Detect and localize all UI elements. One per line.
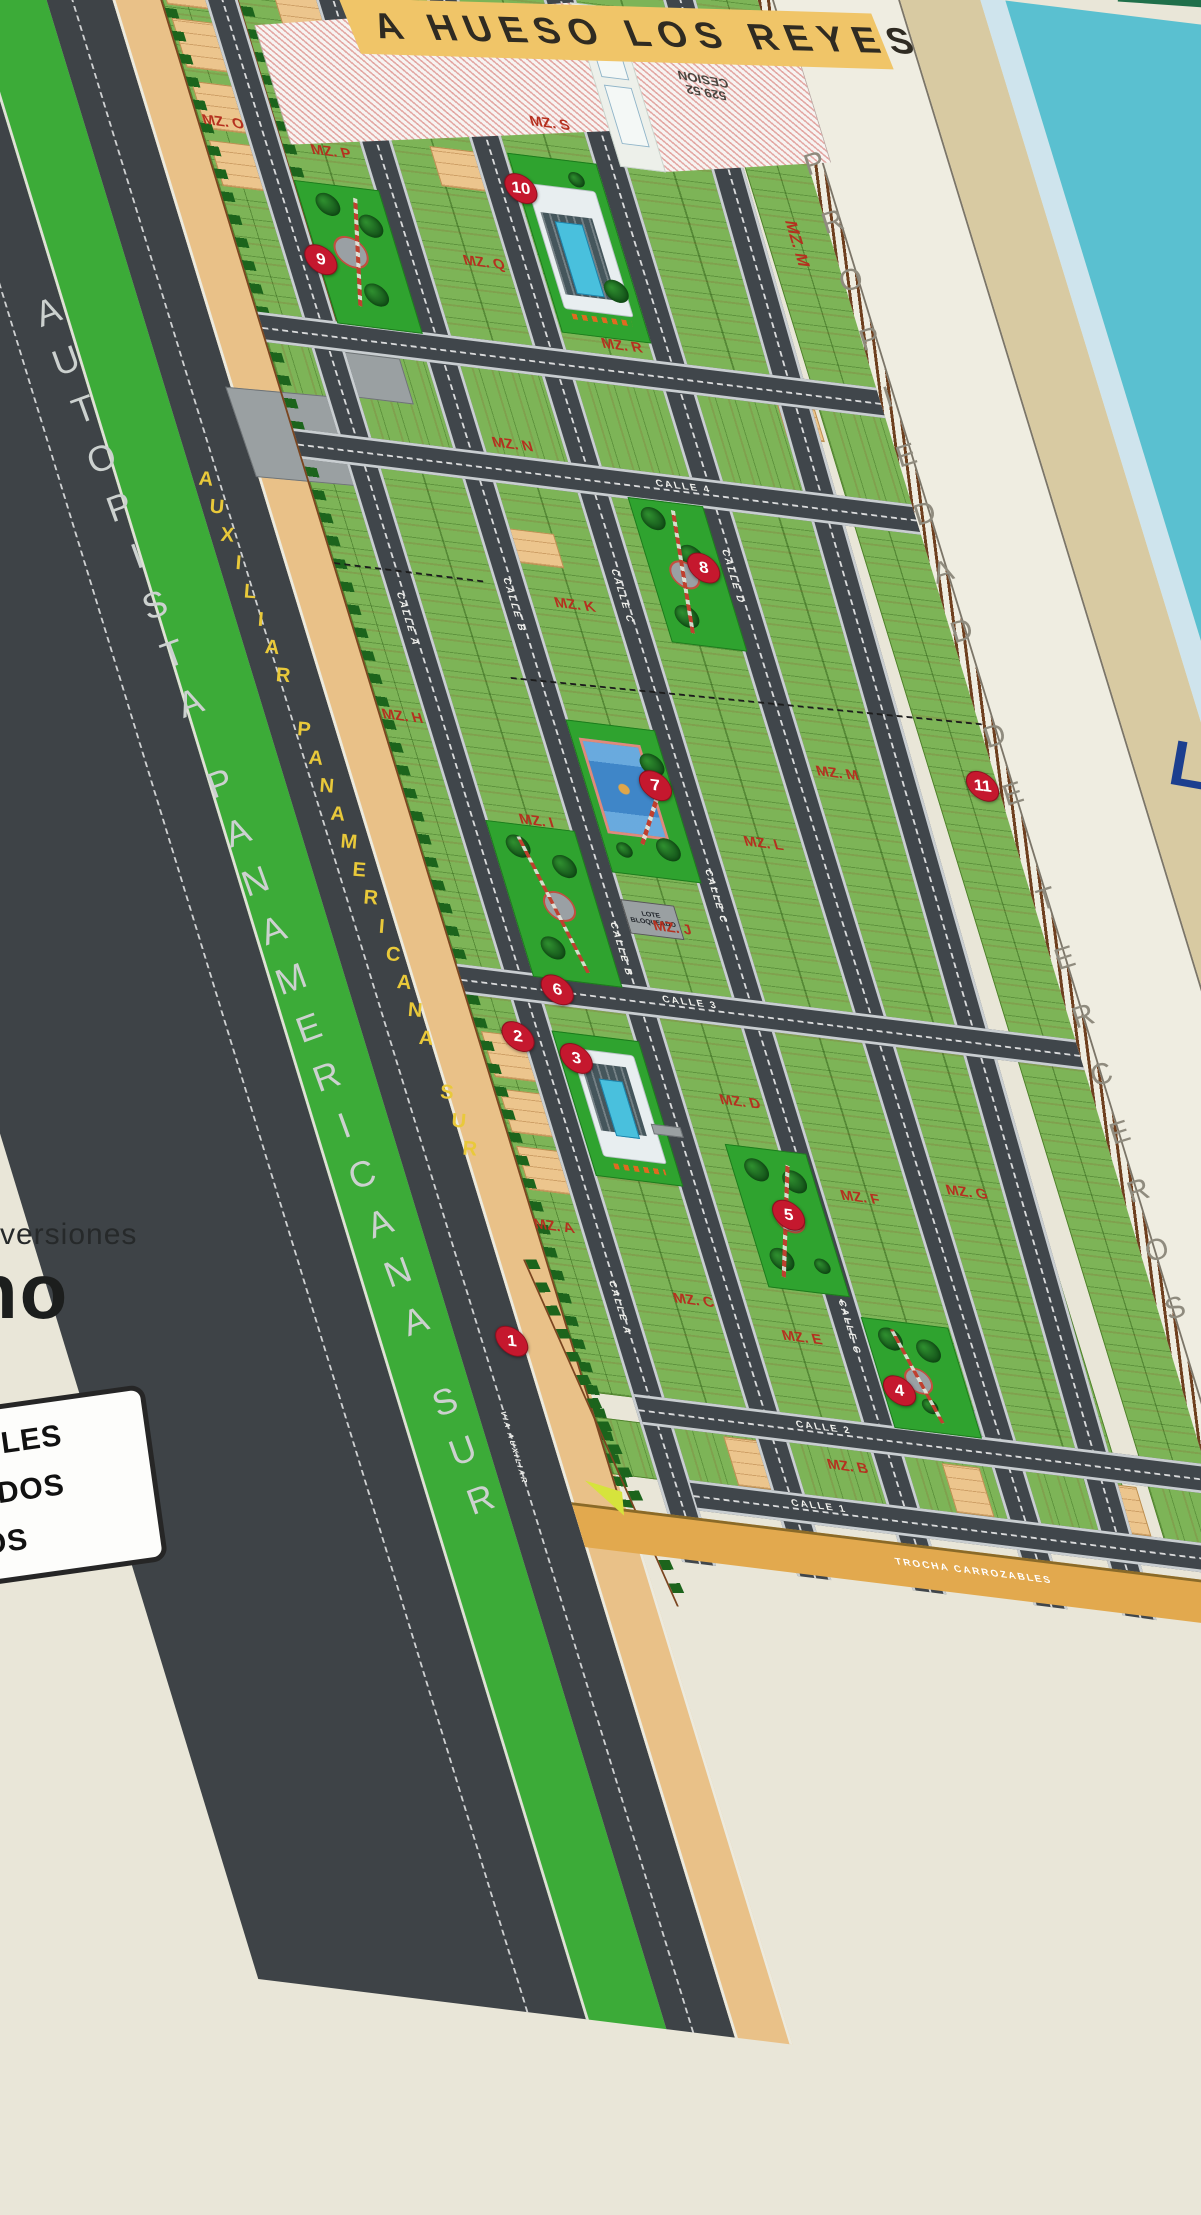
inversiones-logo-mark: no <box>0 1246 69 1337</box>
legend-item-vendidos: DOS <box>0 1506 154 1567</box>
site-plan-plane: 2377.71 CESION 529.52 CESION A HUESO LOS… <box>0 0 1201 2215</box>
billboard-frame-edge <box>1118 0 1201 11</box>
status-legend-box: NIBLES EADOS DOS <box>0 1384 168 1590</box>
hueso-los-reyes-label: A HUESO LOS REYES <box>366 6 930 63</box>
billboard-photo: { "billboard": { "top_road_label": "A HU… <box>0 0 1201 1600</box>
